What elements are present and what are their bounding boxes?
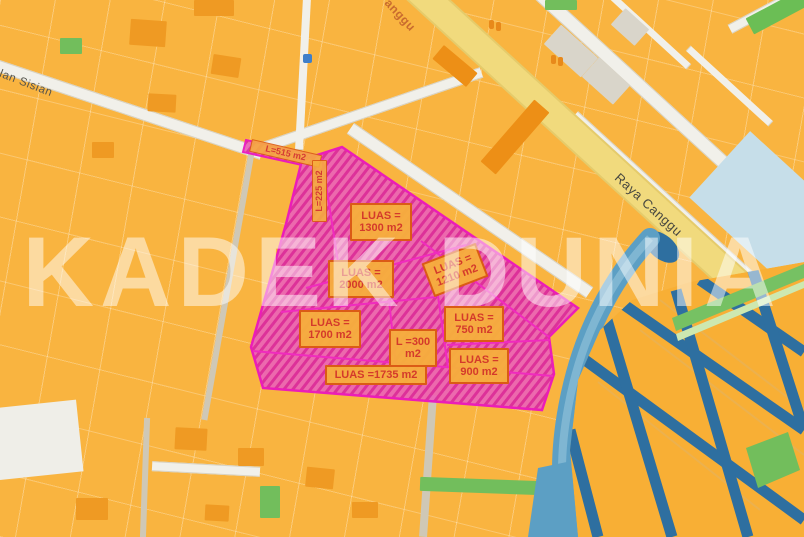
building (305, 467, 335, 490)
green-strip-bottom (420, 477, 542, 495)
white-area-bottomleft (0, 400, 84, 481)
area-label: L=225 m2 (312, 160, 327, 222)
building (211, 54, 242, 78)
parking-icon (303, 54, 312, 63)
shop-icon (551, 55, 556, 64)
building (352, 502, 378, 518)
green-strip-corner (746, 0, 804, 34)
building (205, 504, 230, 521)
green-block (746, 432, 800, 488)
parcel-texture (0, 0, 804, 537)
building (129, 19, 167, 47)
block-parcel-lines (598, 300, 804, 510)
road-bottomleft-v1 (140, 418, 150, 537)
area-label: LUAS = 1700 m2 (299, 310, 361, 348)
green-patch (60, 38, 82, 54)
building (92, 142, 114, 158)
green-patch (260, 486, 280, 518)
area-label: LUAS =1735 m2 (325, 365, 427, 385)
building (148, 93, 177, 112)
area-label: L =300 m2 (389, 329, 437, 367)
shop-icon (489, 20, 494, 29)
vector-overlay (0, 0, 804, 537)
building (76, 498, 108, 520)
road-left-down (201, 152, 254, 421)
road-perp-2 (686, 46, 773, 127)
area-label: LUAS = 2000 m2 (328, 260, 394, 298)
road-bottom-v2 (419, 395, 437, 537)
building-gray (611, 8, 650, 46)
area-label: LUAS = 750 m2 (444, 306, 504, 342)
building-roadside (481, 99, 550, 174)
building (194, 0, 234, 16)
green-patch (545, 0, 577, 10)
area-label: LUAS = 1210 m2 (421, 243, 488, 297)
area-label: LUAS = 900 m2 (449, 348, 509, 384)
building (174, 427, 207, 451)
river-mouth (528, 458, 592, 537)
area-label: LUAS = 1300 m2 (350, 203, 412, 241)
map-canvas: L=515 m2 L=225 m2 LUAS = 1300 m2 LUAS = … (0, 0, 804, 537)
building (238, 448, 264, 466)
